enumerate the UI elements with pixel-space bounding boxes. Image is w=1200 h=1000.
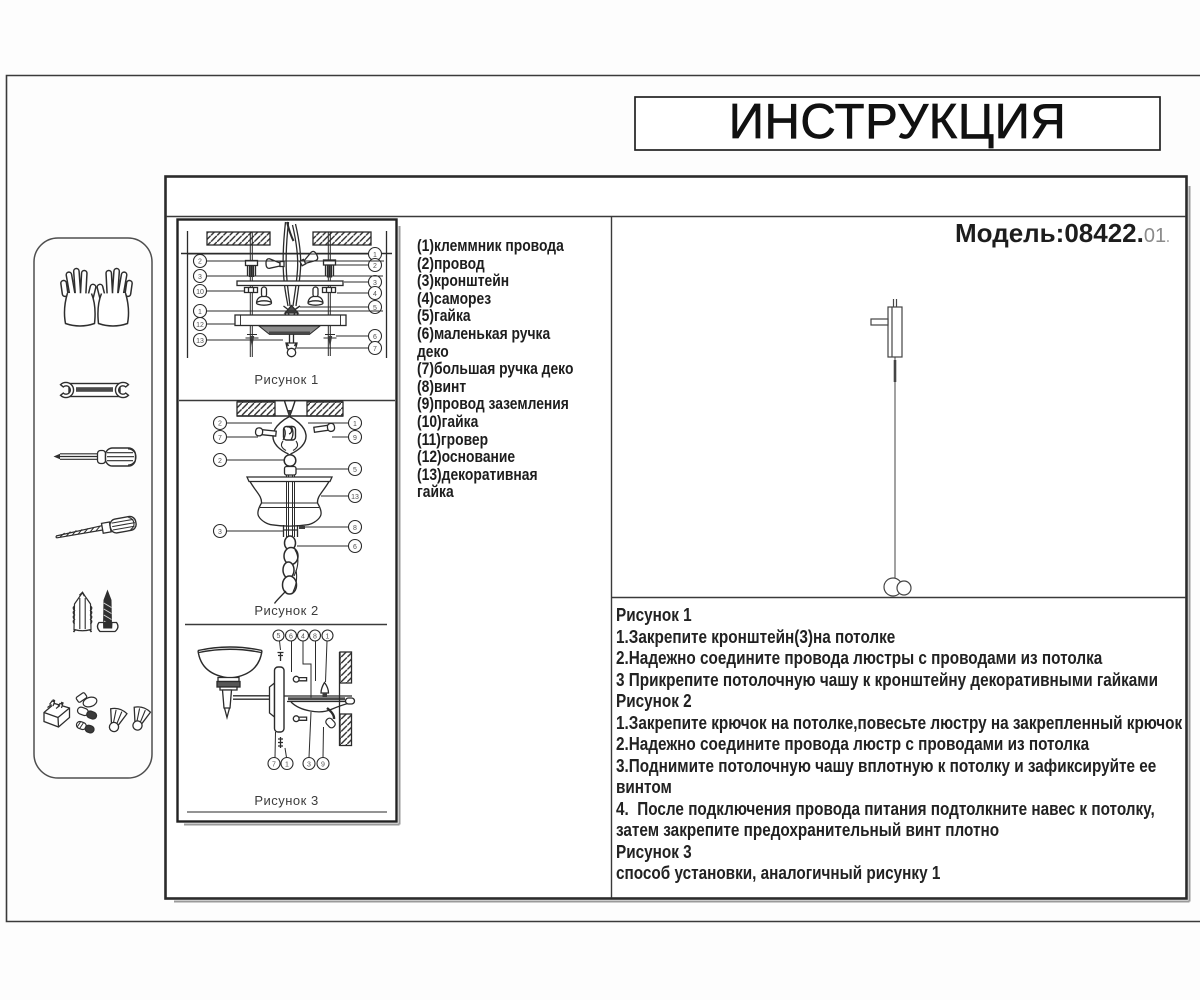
svg-text:3: 3 (218, 529, 222, 536)
svg-text:3: 3 (373, 280, 377, 287)
svg-text:7: 7 (272, 762, 276, 769)
svg-text:1: 1 (373, 252, 377, 259)
svg-text:1: 1 (198, 309, 202, 316)
svg-text:13: 13 (351, 494, 359, 501)
svg-text:4: 4 (373, 291, 377, 298)
svg-text:6: 6 (353, 544, 357, 551)
svg-text:8: 8 (313, 634, 317, 641)
svg-text:6: 6 (373, 334, 377, 341)
svg-text:2: 2 (218, 458, 222, 465)
svg-text:8: 8 (353, 525, 357, 532)
svg-text:1: 1 (285, 762, 289, 769)
svg-text:3: 3 (198, 274, 202, 281)
svg-text:1: 1 (353, 421, 357, 428)
svg-text:5: 5 (373, 305, 377, 312)
svg-text:5: 5 (277, 633, 281, 640)
svg-text:5: 5 (353, 467, 357, 474)
svg-text:4: 4 (301, 634, 305, 641)
svg-text:9: 9 (321, 762, 325, 769)
svg-text:7: 7 (218, 435, 222, 442)
svg-text:2: 2 (373, 263, 377, 270)
svg-text:7: 7 (373, 346, 377, 353)
svg-text:12: 12 (196, 322, 204, 329)
svg-text:9: 9 (353, 435, 357, 442)
svg-text:3: 3 (307, 762, 311, 769)
svg-text:2: 2 (218, 421, 222, 428)
svg-text:13: 13 (196, 338, 204, 345)
svg-text:10: 10 (196, 289, 204, 296)
svg-text:1: 1 (326, 634, 330, 641)
svg-text:2: 2 (198, 259, 202, 266)
svg-text:6: 6 (289, 634, 293, 641)
